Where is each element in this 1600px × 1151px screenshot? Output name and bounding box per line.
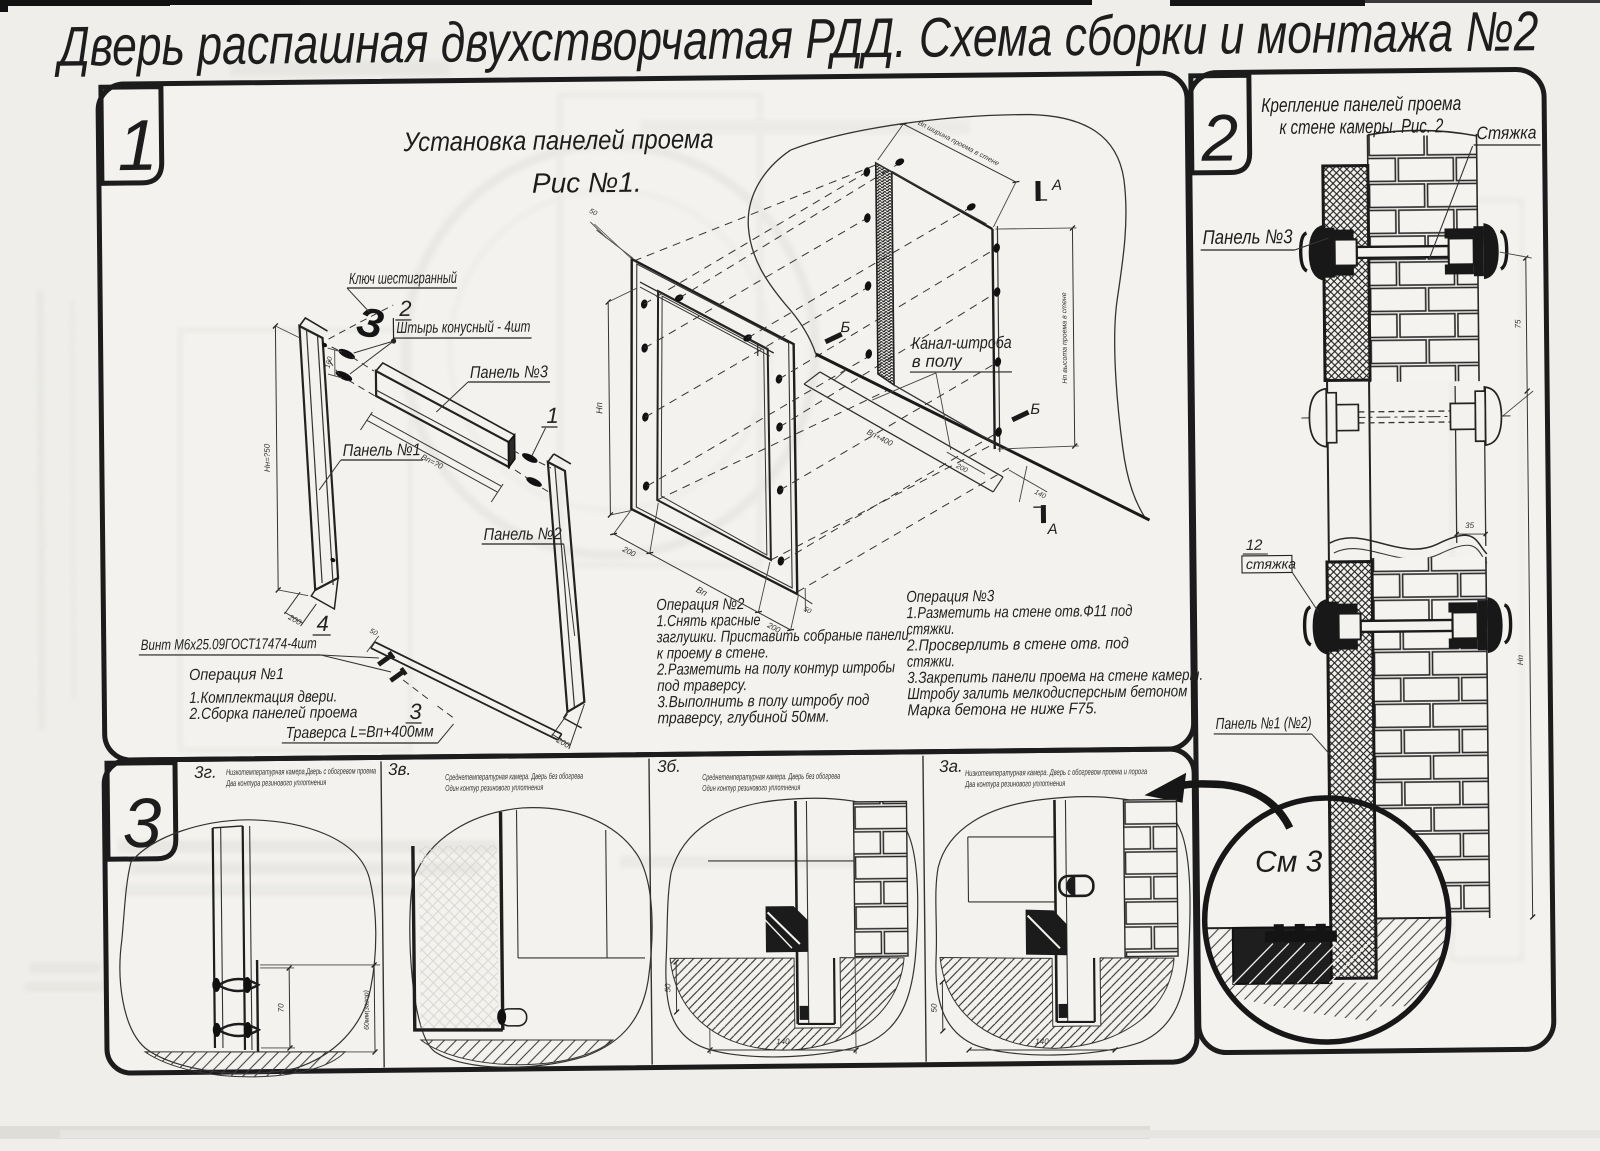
svg-text:2.Просверлить в стене отв.: 2.Просверлить в стене отв. под xyxy=(906,635,1129,654)
svg-text:2.Разметить на полу контур штр: 2.Разметить на полу контур штробы xyxy=(656,659,895,679)
svg-text:Панель №1 (№2): Панель №1 (№2) xyxy=(1216,715,1312,733)
svg-text:Рис №1.: Рис №1. xyxy=(532,167,642,199)
svg-text:Б: Б xyxy=(840,319,850,336)
svg-text:Два контура резинового уплотне: Два контура резинового уплотнения xyxy=(225,777,326,788)
svg-text:Установка панелей проема: Установка панелей проема xyxy=(402,124,713,157)
svg-text:3б.: 3б. xyxy=(657,757,681,776)
svg-text:Среднетемпературная камера. Дв: Среднетемпературная камера. Дверь без об… xyxy=(702,771,840,782)
svg-text:Hп: Hп xyxy=(1516,654,1525,665)
svg-text:Низкотемпературная камера. Две: Низкотемпературная камера. Дверь с обогр… xyxy=(965,766,1147,778)
svg-text:Канал-штроба: Канал-штроба xyxy=(912,333,1012,353)
svg-text:140: 140 xyxy=(1035,1037,1049,1046)
svg-text:Траверса L=Bп+400мм: Траверса L=Bп+400мм xyxy=(286,723,434,742)
svg-text:1.Разметить на стене отв.Ф11 п: 1.Разметить на стене отв.Ф11 под xyxy=(906,603,1132,622)
svg-text:140: 140 xyxy=(776,1037,790,1046)
svg-text:Винт М6х25.09ГОСТ17474-4шт: Винт М6х25.09ГОСТ17474-4шт xyxy=(141,635,317,654)
svg-text:Б: Б xyxy=(1030,401,1040,418)
svg-text:Стяжка: Стяжка xyxy=(1476,122,1536,143)
svg-text:3г.: 3г. xyxy=(194,763,217,782)
svg-text:Панель №1: Панель №1 xyxy=(343,440,421,460)
svg-text:под траверсу.: под траверсу. xyxy=(657,677,747,695)
svg-text:Два контура резинового уплотне: Два контура резинового уплотнения xyxy=(965,778,1066,789)
svg-text:Один контур резинового уплотне: Один контур резинового уплотнения xyxy=(702,782,800,793)
svg-text:заглушки. Приставить собраные: заглушки. Приставить собраные панели xyxy=(656,627,909,647)
svg-text:1: 1 xyxy=(546,403,559,428)
svg-text:Панель №3: Панель №3 xyxy=(470,362,549,382)
svg-text:стяжки.: стяжки. xyxy=(907,621,955,639)
svg-text:12: 12 xyxy=(1246,537,1264,554)
svg-text:1: 1 xyxy=(117,106,158,186)
svg-text:Один контур резинового уплотне: Один контур резинового уплотнения xyxy=(445,782,543,793)
svg-text:35: 35 xyxy=(1465,521,1475,530)
svg-text:к стене камеры. Рис. 2: к стене камеры. Рис. 2 xyxy=(1279,115,1443,139)
svg-text:Крепление панелей проема: Крепление панелей проема xyxy=(1261,93,1461,117)
svg-text:в полу: в полу xyxy=(912,351,964,371)
svg-text:Операция №3: Операция №3 xyxy=(906,588,994,606)
svg-text:Панель №2: Панель №2 xyxy=(484,524,563,544)
svg-text:2: 2 xyxy=(398,296,412,321)
svg-text:Hп высота проема в стене: Hп высота проема в стене xyxy=(1061,292,1069,383)
svg-text:Hн=?50: Hн=?50 xyxy=(263,443,272,472)
svg-text:70: 70 xyxy=(277,1003,286,1013)
svg-text:3в.: 3в. xyxy=(388,760,411,779)
svg-text:Марка бетона не ниже F75.: Марка бетона не ниже F75. xyxy=(907,700,1097,719)
svg-text:стяжка: стяжка xyxy=(1246,556,1296,573)
svg-text:Операция №2: Операция №2 xyxy=(656,596,744,614)
svg-text:А: А xyxy=(1051,177,1062,194)
svg-text:Ключ шестигранный: Ключ шестигранный xyxy=(349,270,457,288)
svg-text:траверсу, глубиной 50мм.: траверсу, глубиной 50мм. xyxy=(657,709,829,728)
svg-text:50: 50 xyxy=(663,983,672,993)
svg-text:Панель №3: Панель №3 xyxy=(1202,226,1292,249)
svg-text:Штырь конусный - 4шт: Штырь конусный - 4шт xyxy=(396,319,530,337)
svg-text:3а.: 3а. xyxy=(939,757,963,776)
svg-text:стяжки.: стяжки. xyxy=(907,653,955,671)
svg-text:2: 2 xyxy=(1200,100,1238,174)
svg-text:3: 3 xyxy=(122,784,162,862)
svg-text:Низкотемпературная камера.Двер: Низкотемпературная камера.Дверь с обогре… xyxy=(226,765,376,777)
svg-text:75: 75 xyxy=(1513,319,1522,329)
svg-text:2.Сборка панелей проема: 2.Сборка панелей проема xyxy=(189,704,358,723)
svg-text:Операция №1: Операция №1 xyxy=(189,666,284,684)
svg-text:3: 3 xyxy=(409,699,422,724)
svg-text:50: 50 xyxy=(930,1003,939,1013)
svg-text:Hп: Hп xyxy=(594,402,604,414)
svg-text:Среднетемпературная камера. Дв: Среднетемпературная камера. Дверь без об… xyxy=(445,771,583,782)
svg-text:4: 4 xyxy=(316,611,329,636)
svg-text:См 3: См 3 xyxy=(1255,845,1323,879)
svg-text:60мм(зазор): 60мм(зазор) xyxy=(363,990,370,1030)
svg-text:А: А xyxy=(1047,521,1058,538)
